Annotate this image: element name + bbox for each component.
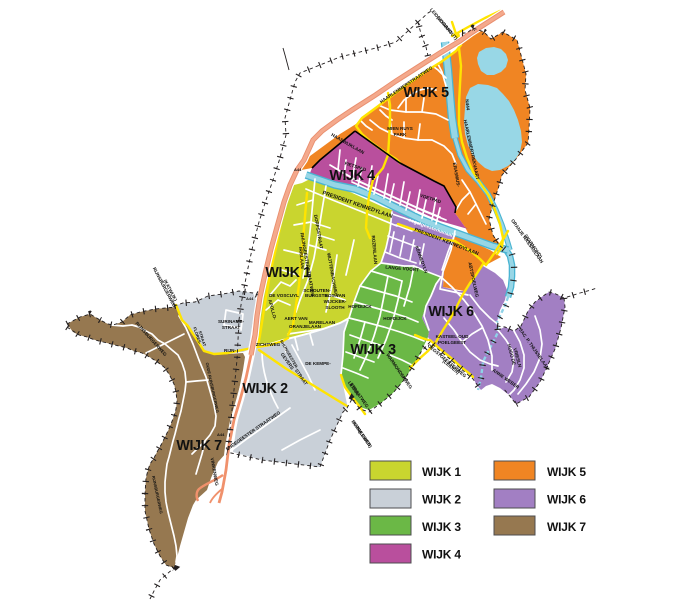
svg-text:MARELAAN: MARELAAN	[309, 320, 336, 325]
svg-text:WIJK 6: WIJK 6	[547, 493, 586, 507]
svg-text:WIJK 2: WIJK 2	[422, 493, 461, 507]
svg-text:MIEN RUYS: MIEN RUYS	[387, 126, 413, 131]
svg-text:WIJK 5: WIJK 5	[547, 465, 586, 479]
svg-text:A44: A44	[246, 296, 254, 301]
svg-text:WIJK 5: WIJK 5	[403, 85, 449, 101]
svg-text:SURINAME-: SURINAME-	[218, 319, 245, 324]
svg-text:RIJN-: RIJN-	[224, 348, 236, 353]
svg-text:WIJK 1: WIJK 1	[422, 465, 461, 479]
svg-text:HOFDIJCK: HOFDIJCK	[383, 316, 407, 321]
svg-text:WIJK 3: WIJK 3	[422, 520, 461, 534]
svg-text:DE VOSCUYL: DE VOSCUYL	[269, 293, 299, 298]
svg-text:DE KEMPE-: DE KEMPE-	[305, 361, 331, 366]
svg-text:HOFDIJCK: HOFDIJCK	[348, 304, 372, 309]
svg-text:A44: A44	[294, 167, 302, 172]
svg-text:WIJK 6: WIJK 6	[428, 304, 474, 320]
svg-text:WIJK 4: WIJK 4	[422, 548, 461, 562]
svg-text:WIJK 2: WIJK 2	[242, 381, 288, 397]
svg-text:ZICHTWEG: ZICHTWEG	[256, 342, 281, 347]
svg-text:WIJK 4: WIJK 4	[329, 168, 375, 184]
svg-text:PARK: PARK	[394, 132, 407, 137]
svg-text:SLOOTH: SLOOTH	[325, 305, 345, 310]
svg-text:WIJCKER-: WIJCKER-	[324, 299, 347, 304]
svg-text:STRAAT: STRAAT	[222, 325, 240, 330]
svg-text:WIJK 7: WIJK 7	[176, 438, 222, 454]
svg-text:A44: A44	[217, 432, 225, 437]
svg-text:AERT VAN: AERT VAN	[284, 316, 308, 321]
svg-text:WIJK 7: WIJK 7	[547, 520, 586, 534]
svg-text:POELGEEST: POELGEEST	[438, 340, 466, 345]
svg-text:KASTEEL OUD: KASTEEL OUD	[436, 334, 470, 339]
